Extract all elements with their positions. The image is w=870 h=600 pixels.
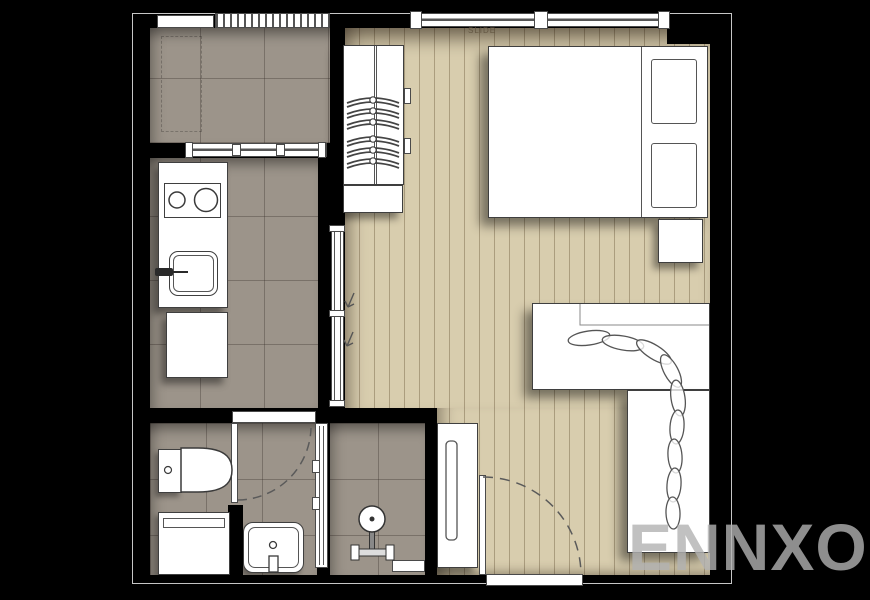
window-post (232, 144, 241, 156)
wardrobe-hinge (404, 88, 411, 104)
door-track-cap (329, 400, 345, 407)
louver-window (215, 13, 330, 28)
balcony-equipment-outline (161, 36, 202, 132)
glass-handle (312, 460, 320, 473)
wardrobe-drawer (343, 185, 403, 213)
pillow (651, 59, 697, 124)
bathroom-door-threshold (232, 411, 316, 423)
door-track-cap (329, 310, 345, 317)
wash-basin (243, 522, 304, 573)
window-post (658, 11, 670, 29)
stove (164, 183, 221, 218)
pillow (651, 143, 697, 208)
refrigerator (166, 312, 228, 378)
shower-glass-partition (315, 423, 328, 568)
shower-threshold (392, 560, 425, 572)
window-annotation: SLIDE (468, 26, 496, 35)
entrance-door-leaf (479, 475, 486, 575)
desk-top-section (532, 303, 710, 390)
floor-plan: SLIDE ENNXO (0, 0, 870, 600)
window-post (410, 11, 422, 29)
entry-cabinet (437, 423, 478, 568)
window-post (276, 144, 285, 156)
nightstand (658, 219, 703, 263)
balcony-door (157, 15, 214, 28)
glass-handle (312, 497, 320, 510)
wall-top-right (667, 14, 731, 44)
toilet-tank (158, 449, 182, 493)
wall-bathroom-stub (228, 505, 243, 575)
double-bed (488, 46, 708, 218)
wardrobe (343, 45, 404, 185)
window-post (185, 142, 193, 158)
entrance-threshold (486, 574, 583, 586)
shower-floor (330, 423, 425, 575)
wardrobe-hinge (404, 138, 411, 154)
vanity (158, 512, 230, 575)
sliding-window-left (418, 13, 538, 27)
watermark: ENNXO (628, 514, 868, 580)
kitchen-sink (169, 251, 218, 296)
sliding-window-right (543, 13, 667, 27)
pass-through-window (188, 143, 327, 157)
window-post (534, 11, 548, 29)
bathroom-door-leaf (231, 423, 238, 503)
door-track-cap (329, 225, 345, 232)
window-post (318, 142, 326, 158)
